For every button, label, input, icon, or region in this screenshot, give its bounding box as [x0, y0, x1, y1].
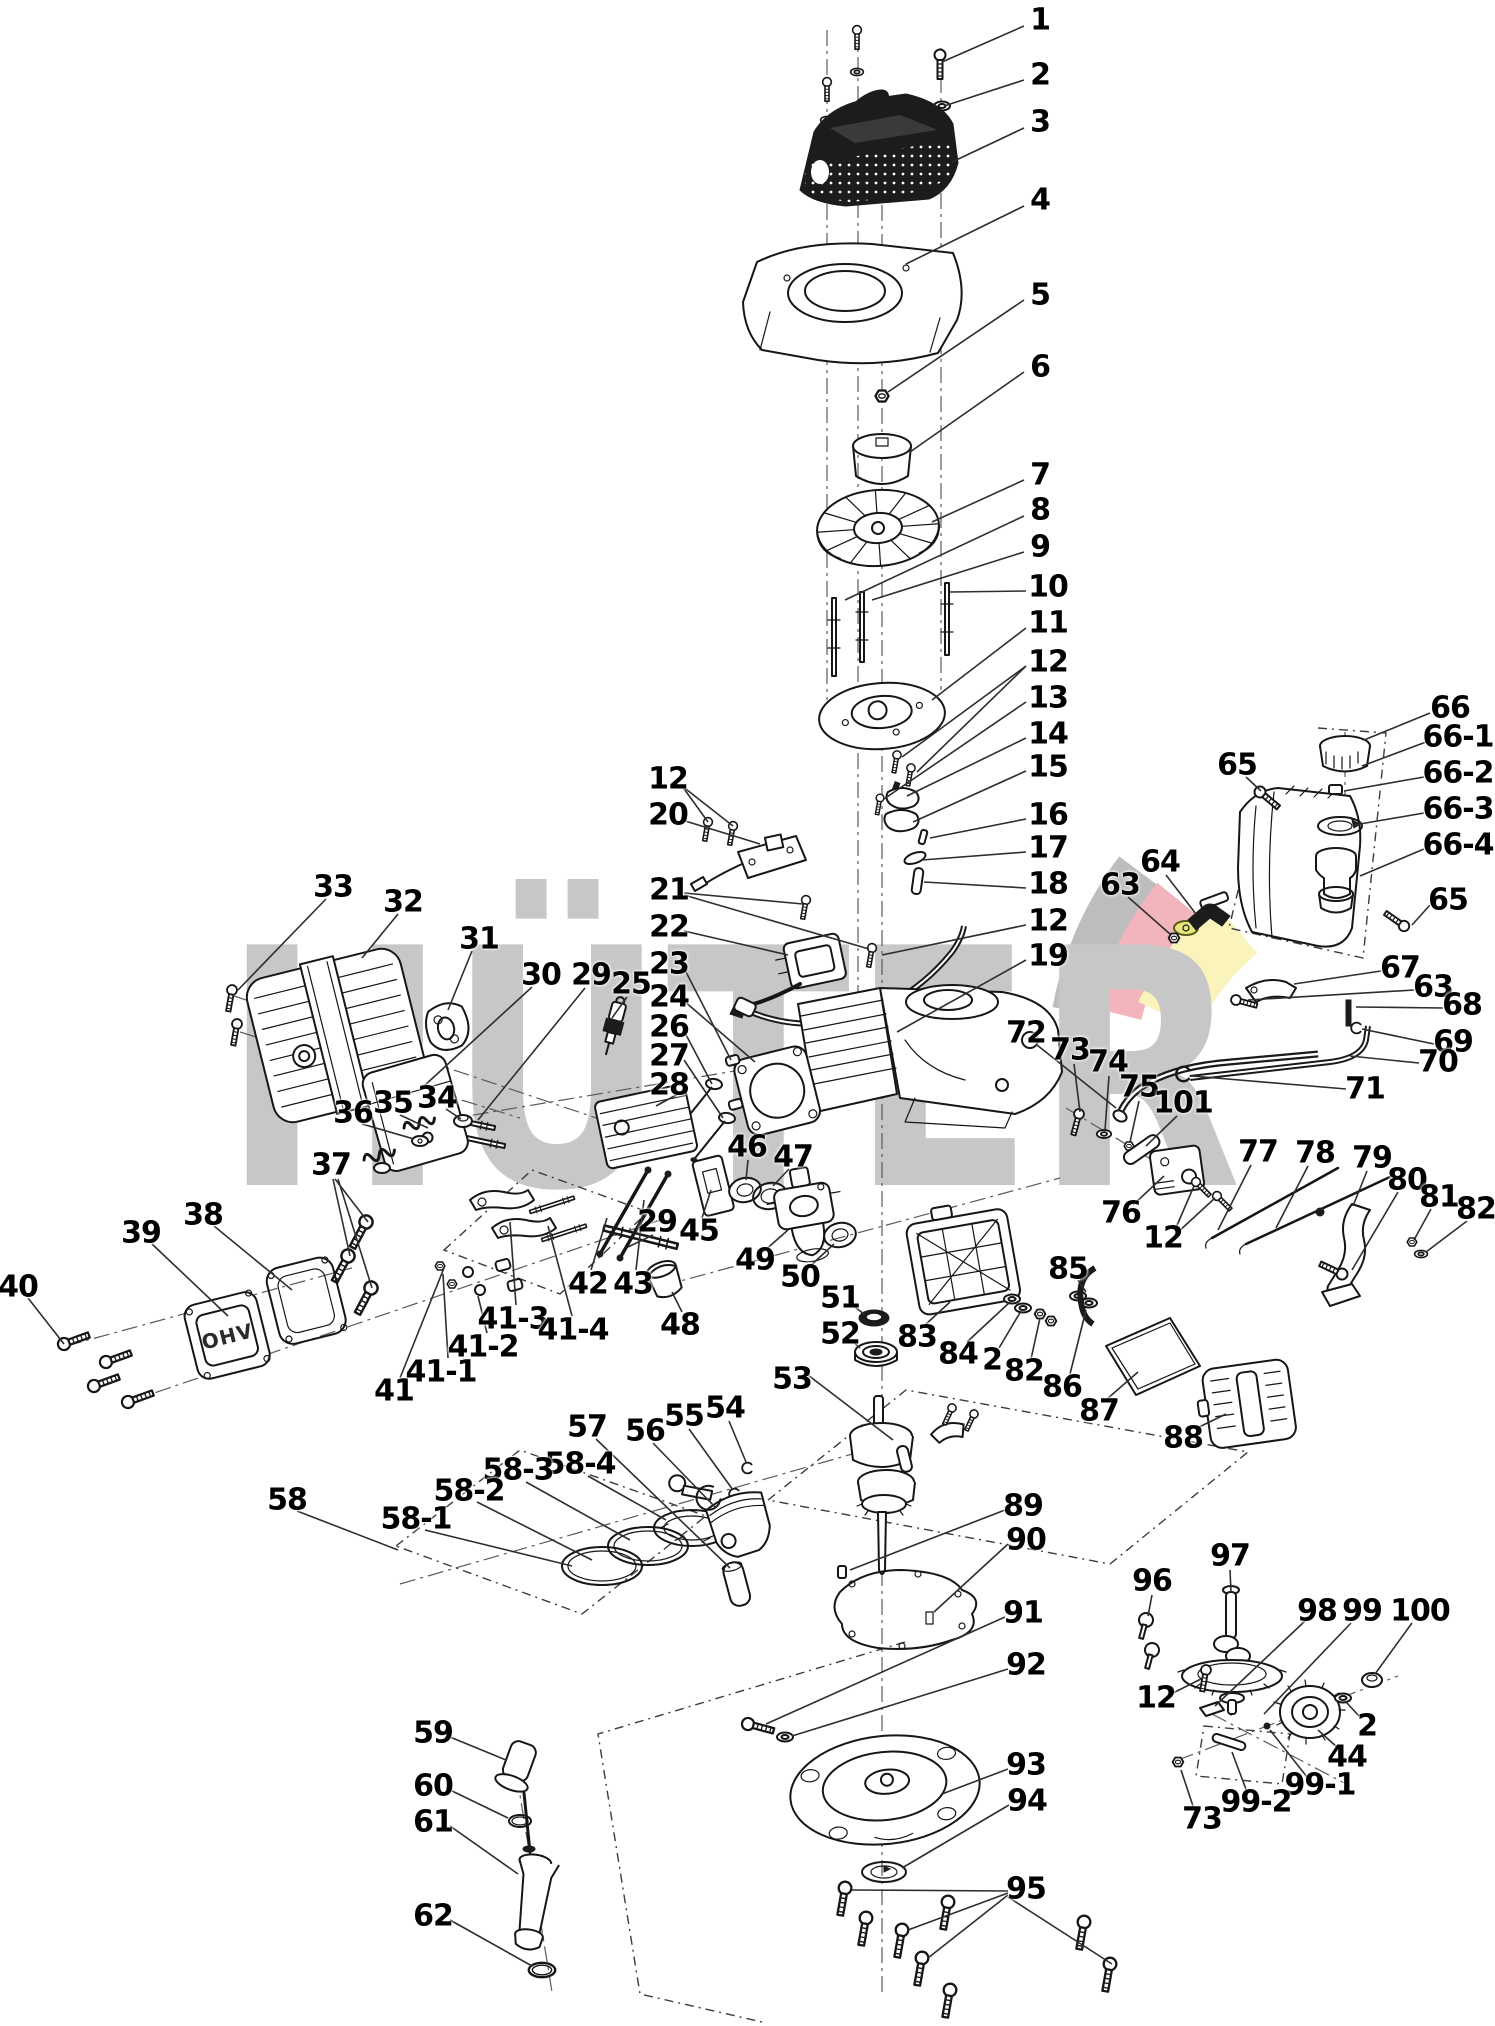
callout-46: 46 — [727, 1130, 767, 1165]
callout-5: 5 — [1030, 278, 1050, 313]
callout-35: 35 — [373, 1086, 413, 1121]
callout-83: 83 — [897, 1320, 937, 1355]
callout-55: 55 — [664, 1399, 704, 1434]
callout-23: 23 — [649, 947, 689, 982]
callout-60: 60 — [413, 1769, 453, 1804]
callout-73: 73 — [1050, 1033, 1090, 1068]
callout-29: 29 — [571, 958, 611, 993]
callout-39: 39 — [121, 1216, 161, 1251]
callout-10: 10 — [1028, 570, 1068, 605]
callout-97: 97 — [1210, 1539, 1250, 1574]
callout-53: 53 — [772, 1362, 812, 1397]
callout-4: 4 — [1030, 183, 1050, 218]
callout-70: 70 — [1418, 1045, 1458, 1080]
callout-52: 52 — [820, 1317, 860, 1352]
callout-64: 64 — [1140, 845, 1180, 880]
callout-3: 3 — [1030, 105, 1050, 140]
callout-43: 43 — [613, 1267, 653, 1302]
callout-82: 82 — [1004, 1354, 1044, 1389]
callout-65: 65 — [1217, 748, 1257, 783]
callout-58: 58 — [267, 1483, 307, 1518]
callout-22: 22 — [649, 910, 689, 945]
callout-99-2: 99-2 — [1220, 1785, 1291, 1820]
callout-56: 56 — [625, 1414, 665, 1449]
callout-28: 28 — [649, 1068, 689, 1103]
callout-7: 7 — [1030, 458, 1050, 493]
callout-81: 81 — [1419, 1180, 1459, 1215]
callout-47: 47 — [773, 1140, 813, 1175]
callout-16: 16 — [1028, 798, 1068, 833]
callout-71: 71 — [1345, 1072, 1385, 1107]
callout-12: 12 — [648, 762, 688, 797]
callout-21: 21 — [649, 873, 689, 908]
callout-96: 96 — [1132, 1564, 1172, 1599]
callout-94: 94 — [1007, 1784, 1047, 1819]
callout-66-3: 66-3 — [1422, 792, 1493, 827]
callout-41-4: 41-4 — [537, 1313, 608, 1348]
callout-95: 95 — [1006, 1872, 1046, 1907]
callout-12: 12 — [1028, 904, 1068, 939]
callout-59: 59 — [413, 1716, 453, 1751]
callout-99: 99 — [1342, 1594, 1382, 1629]
callout-82: 82 — [1456, 1192, 1495, 1227]
callout-58-4: 58-4 — [544, 1447, 615, 1482]
callout-6: 6 — [1030, 350, 1050, 385]
callout-79: 79 — [1352, 1141, 1392, 1176]
callout-92: 92 — [1006, 1648, 1046, 1683]
callout-51: 51 — [820, 1281, 860, 1316]
callout-15: 15 — [1028, 750, 1068, 785]
callout-9: 9 — [1030, 530, 1050, 565]
callout-62: 62 — [413, 1899, 453, 1934]
callout-31: 31 — [459, 922, 499, 957]
callout-85: 85 — [1048, 1252, 1088, 1287]
callout-48: 48 — [660, 1308, 700, 1343]
callout-76: 76 — [1101, 1196, 1141, 1231]
callout-93: 93 — [1006, 1748, 1046, 1783]
callout-32: 32 — [383, 885, 423, 920]
callout-63: 63 — [1100, 868, 1140, 903]
callout-2: 2 — [982, 1343, 1002, 1378]
callout-2: 2 — [1357, 1709, 1377, 1744]
callout-78: 78 — [1295, 1136, 1335, 1171]
callout-54: 54 — [705, 1391, 745, 1426]
callout-101: 101 — [1153, 1086, 1213, 1121]
callout-100: 100 — [1390, 1594, 1450, 1629]
callout-98: 98 — [1297, 1594, 1337, 1629]
callout-86: 86 — [1042, 1370, 1082, 1405]
callout-8: 8 — [1030, 493, 1050, 528]
callout-17: 17 — [1028, 831, 1068, 866]
callout-40: 40 — [0, 1270, 38, 1305]
callout-25: 25 — [611, 967, 651, 1002]
callout-50: 50 — [780, 1260, 820, 1295]
callout-84: 84 — [938, 1337, 978, 1372]
callout-66-2: 66-2 — [1422, 756, 1493, 791]
callout-12: 12 — [1143, 1221, 1183, 1256]
callout-77: 77 — [1238, 1135, 1278, 1170]
callout-68: 68 — [1442, 988, 1482, 1023]
callout-89: 89 — [1003, 1489, 1043, 1524]
callout-11: 11 — [1028, 606, 1068, 641]
callout-34: 34 — [417, 1081, 457, 1116]
exploded-parts-diagram: HÜTER — [0, 0, 1495, 2026]
callout-2: 2 — [1030, 58, 1050, 93]
callout-29: 29 — [637, 1205, 677, 1240]
callout-87: 87 — [1079, 1394, 1119, 1429]
callout-66-1: 66-1 — [1422, 720, 1493, 755]
callout-33: 33 — [313, 870, 353, 905]
callout-65: 65 — [1428, 883, 1468, 918]
callout-37: 37 — [311, 1148, 351, 1183]
callout-99-1: 99-1 — [1284, 1768, 1355, 1803]
callout-layer: 1234567891011121314151617181219122021222… — [0, 0, 1495, 2026]
callout-90: 90 — [1006, 1523, 1046, 1558]
callout-19: 19 — [1028, 939, 1068, 974]
callout-13: 13 — [1028, 681, 1068, 716]
callout-66-4: 66-4 — [1422, 828, 1493, 863]
callout-72: 72 — [1006, 1016, 1046, 1051]
callout-45: 45 — [679, 1214, 719, 1249]
callout-12: 12 — [1028, 645, 1068, 680]
callout-88: 88 — [1163, 1421, 1203, 1456]
callout-36: 36 — [333, 1096, 373, 1131]
callout-20: 20 — [648, 798, 688, 833]
callout-49: 49 — [735, 1243, 775, 1278]
callout-38: 38 — [183, 1198, 223, 1233]
callout-58-1: 58-1 — [380, 1502, 451, 1537]
callout-73: 73 — [1182, 1802, 1222, 1837]
callout-42: 42 — [568, 1267, 608, 1302]
callout-91: 91 — [1003, 1596, 1043, 1631]
callout-12: 12 — [1136, 1681, 1176, 1716]
callout-30: 30 — [521, 958, 561, 993]
callout-14: 14 — [1028, 717, 1068, 752]
callout-57: 57 — [567, 1410, 607, 1445]
callout-61: 61 — [413, 1805, 453, 1840]
callout-18: 18 — [1028, 867, 1068, 902]
callout-1: 1 — [1030, 3, 1050, 38]
